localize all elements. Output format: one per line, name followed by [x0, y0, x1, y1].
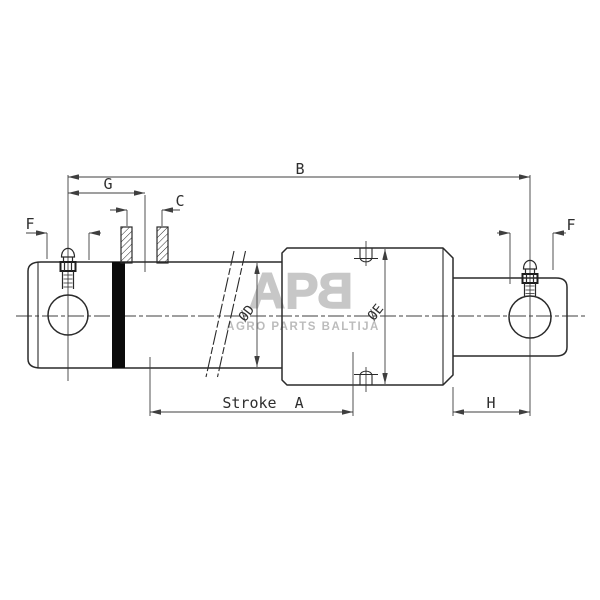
dim-label-stroke: Stroke A: [222, 394, 303, 412]
dim-label-b: B: [295, 160, 304, 178]
dimension-dia-e: ØE: [365, 249, 388, 384]
watermark-logo-ap: AP: [249, 263, 318, 319]
dimension-f-left: F: [25, 215, 101, 260]
piston-band: [112, 262, 125, 368]
rod-end-outline: [453, 278, 567, 356]
dim-label-c: C: [175, 192, 184, 210]
port-wall-right: [157, 227, 168, 263]
dimension-g: G: [68, 175, 145, 193]
port-wall-left: [121, 227, 132, 263]
dim-label-f-left: F: [25, 215, 34, 233]
oil-port: [121, 227, 168, 263]
watermark-logo-mirrored-b: B: [317, 263, 353, 319]
dimension-b: B: [68, 160, 530, 178]
dimension-h: H: [453, 387, 530, 416]
dimension-c: C: [110, 192, 185, 226]
dim-label-h: H: [486, 394, 495, 412]
technical-drawing-page: AP B AGRO PARTS BALTIJA: [0, 0, 600, 600]
dim-label-g: G: [103, 175, 112, 193]
cylinder-drawing: AP B AGRO PARTS BALTIJA: [0, 0, 600, 600]
break-line-1: [206, 251, 234, 377]
dimension-stroke-a: Stroke A: [150, 352, 353, 416]
dim-label-f-right: F: [566, 216, 575, 234]
